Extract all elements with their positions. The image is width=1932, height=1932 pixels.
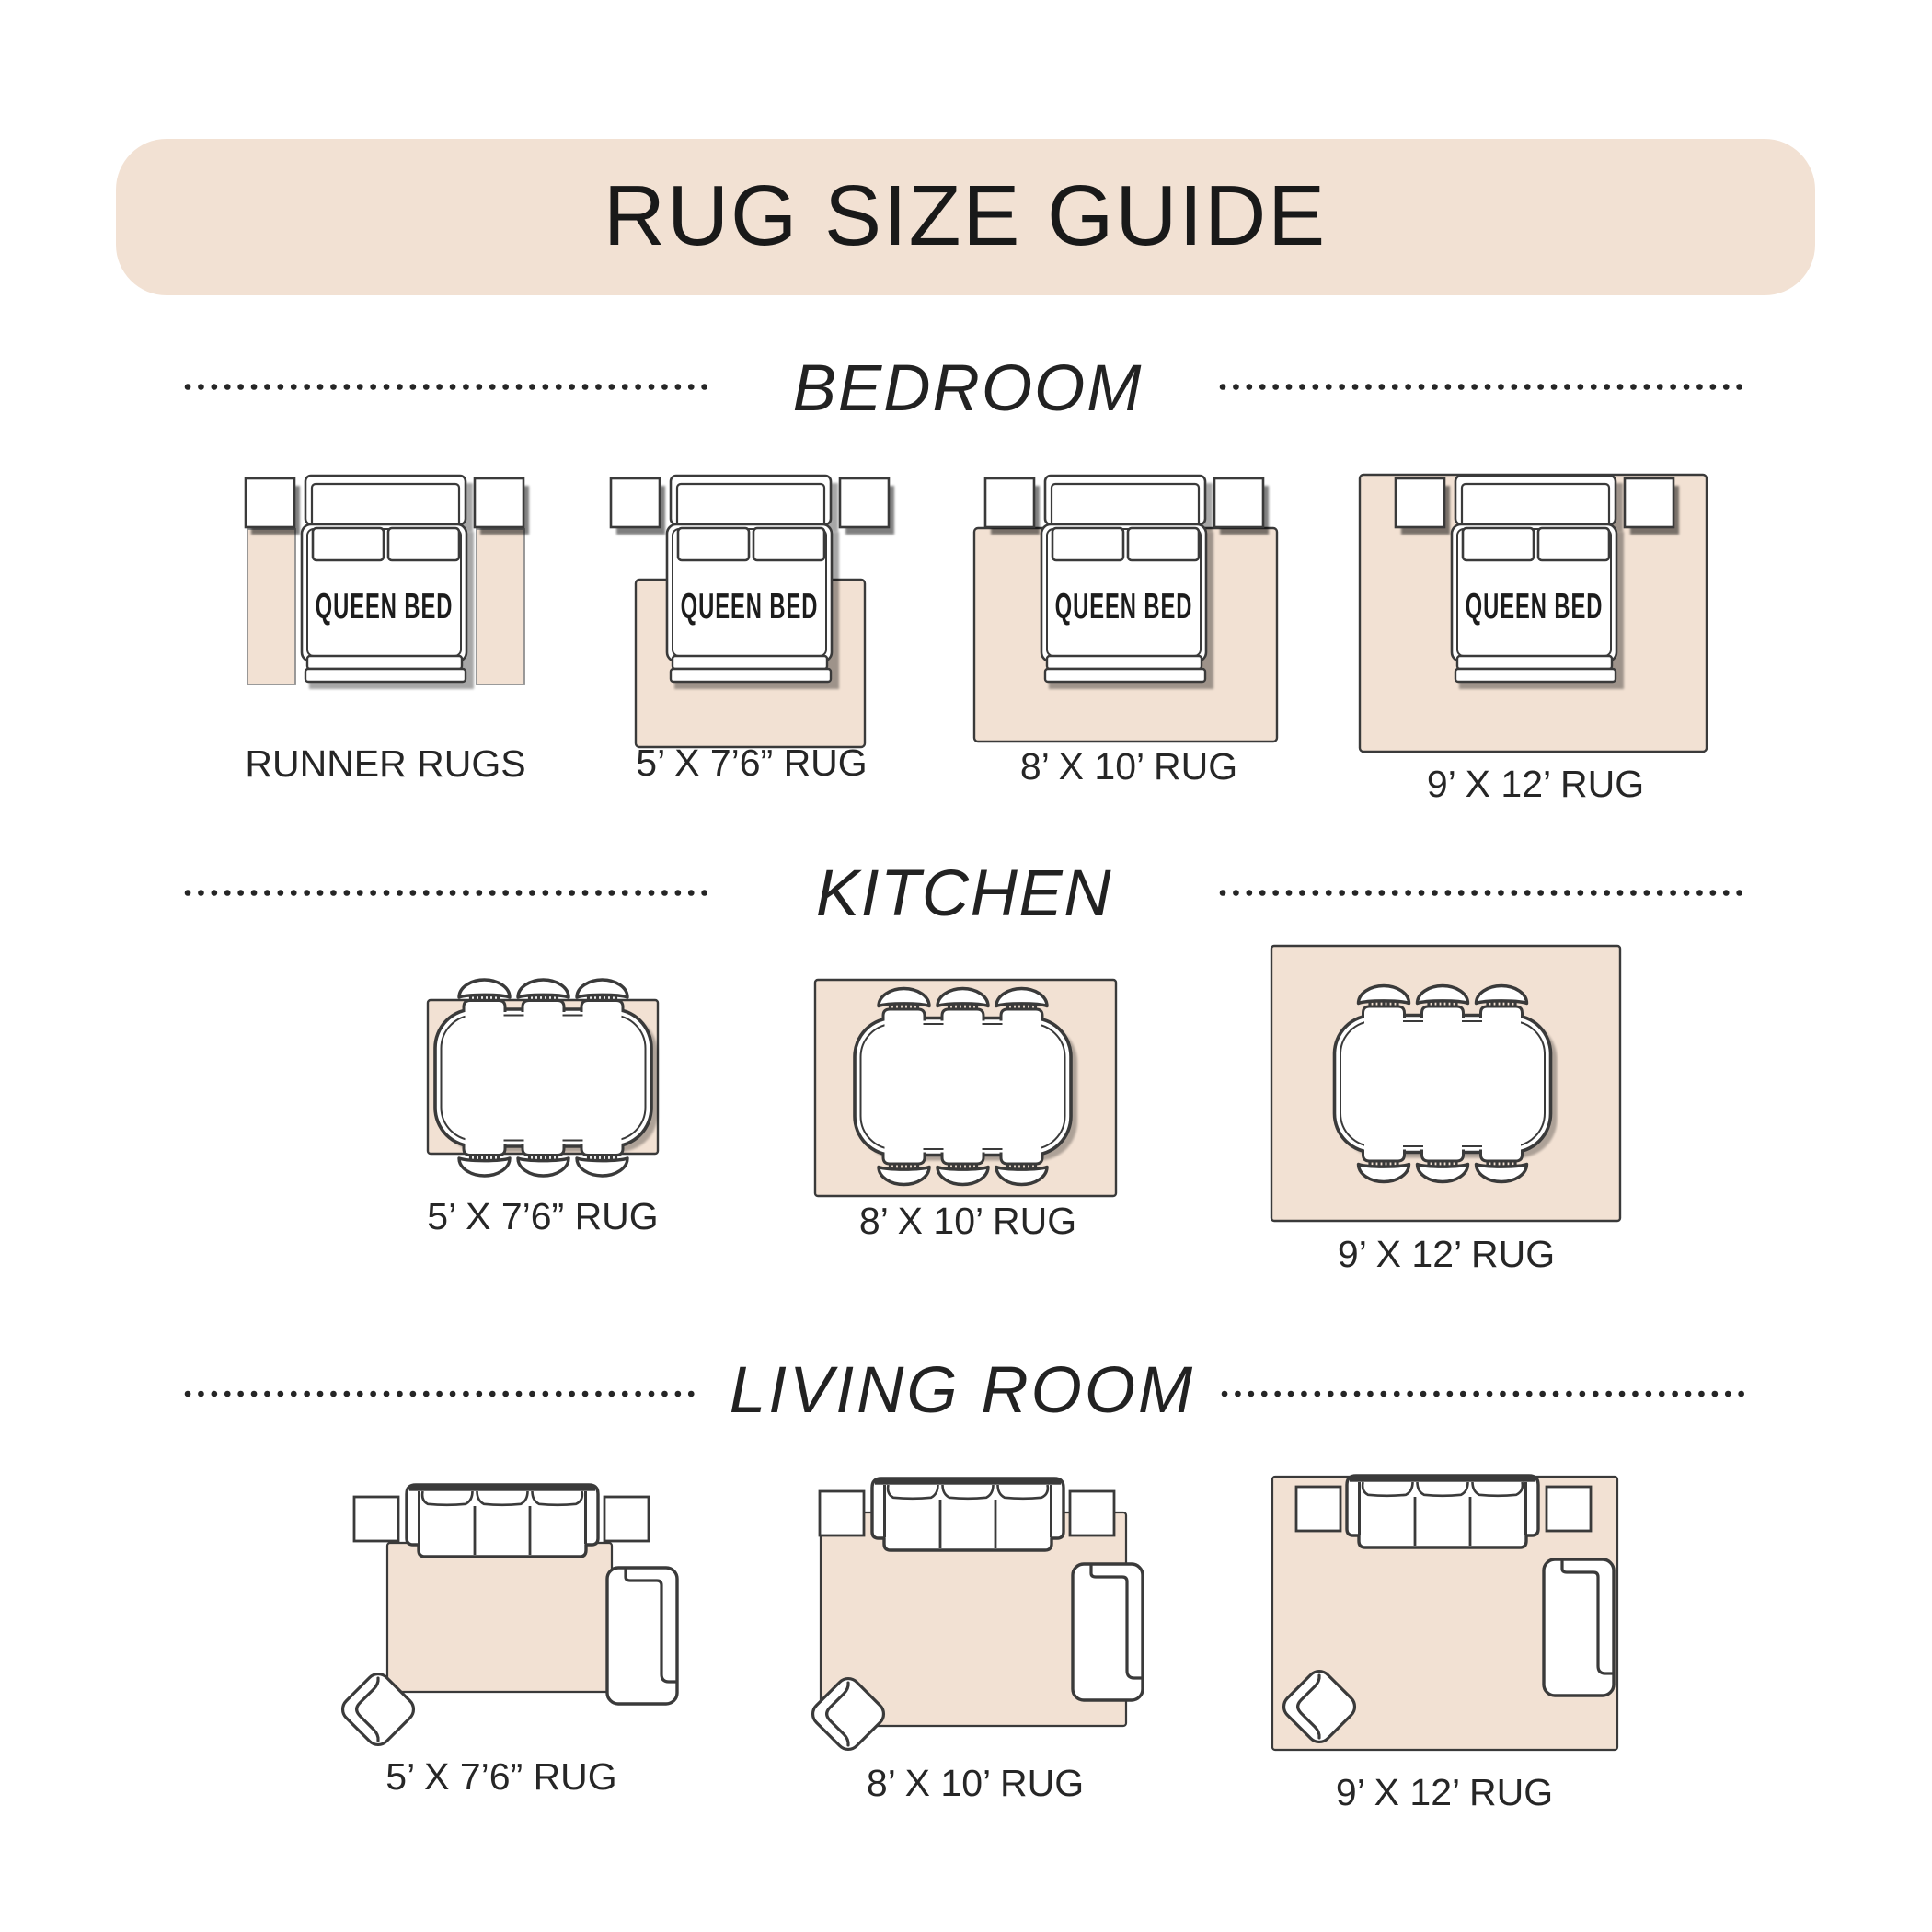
svg-text:5’ X 7’6” RUG: 5’ X 7’6” RUG [385,1755,616,1798]
svg-text:8’ X 10’ RUG: 8’ X 10’ RUG [1020,745,1237,788]
svg-text:RUNNER RUGS: RUNNER RUGS [245,742,525,785]
svg-text:8’ X 10’ RUG: 8’ X 10’ RUG [867,1762,1084,1804]
svg-text:5’ X 7’6” RUG: 5’ X 7’6” RUG [427,1195,658,1237]
svg-text:9’ X 12’ RUG: 9’ X 12’ RUG [1427,763,1644,805]
svg-text:BEDROOM: BEDROOM [793,352,1144,425]
svg-text:8’ X 10’ RUG: 8’ X 10’ RUG [859,1200,1076,1242]
svg-text:RUG SIZE GUIDE: RUG SIZE GUIDE [604,167,1327,263]
svg-text:9’ X 12’ RUG: 9’ X 12’ RUG [1338,1233,1555,1275]
svg-text:LIVING ROOM: LIVING ROOM [730,1354,1195,1427]
svg-text:KITCHEN: KITCHEN [816,857,1112,930]
svg-text:9’ X 12’ RUG: 9’ X 12’ RUG [1336,1771,1553,1813]
svg-text:5’ X 7’6” RUG: 5’ X 7’6” RUG [636,742,867,784]
